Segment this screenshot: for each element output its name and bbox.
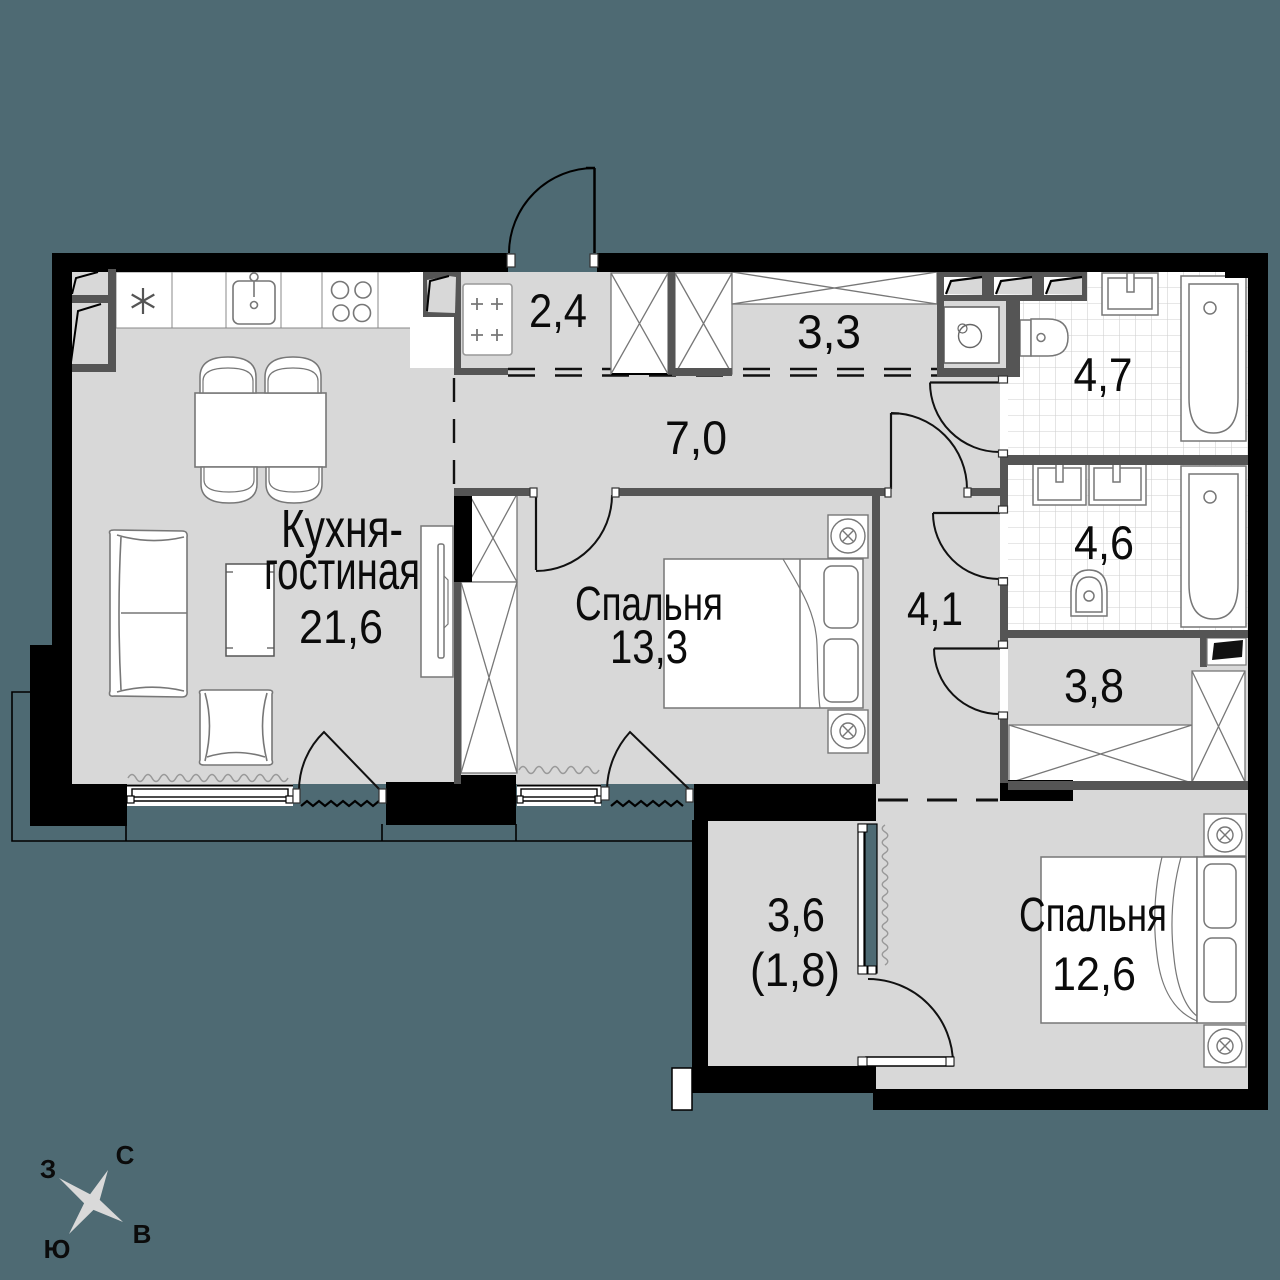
svg-text:В: В	[133, 1219, 152, 1249]
svg-text:3,3: 3,3	[797, 305, 861, 358]
svg-text:(1,8): (1,8)	[750, 943, 840, 996]
svg-text:4,6: 4,6	[1074, 516, 1134, 569]
svg-text:4,7: 4,7	[1074, 348, 1133, 401]
svg-text:3,6: 3,6	[767, 888, 825, 941]
svg-text:2,4: 2,4	[529, 284, 587, 337]
svg-text:З: З	[40, 1154, 56, 1184]
svg-text:12,6: 12,6	[1052, 947, 1136, 1000]
svg-text:13,3: 13,3	[610, 620, 688, 673]
svg-text:Спальня: Спальня	[1019, 889, 1167, 942]
svg-text:С: С	[116, 1140, 135, 1170]
svg-text:Ю: Ю	[44, 1234, 71, 1264]
svg-text:3,8: 3,8	[1064, 659, 1124, 712]
svg-text:гостиная: гостиная	[264, 541, 420, 601]
svg-text:4,1: 4,1	[907, 582, 963, 635]
svg-text:7,0: 7,0	[665, 411, 727, 464]
svg-text:21,6: 21,6	[299, 600, 383, 653]
